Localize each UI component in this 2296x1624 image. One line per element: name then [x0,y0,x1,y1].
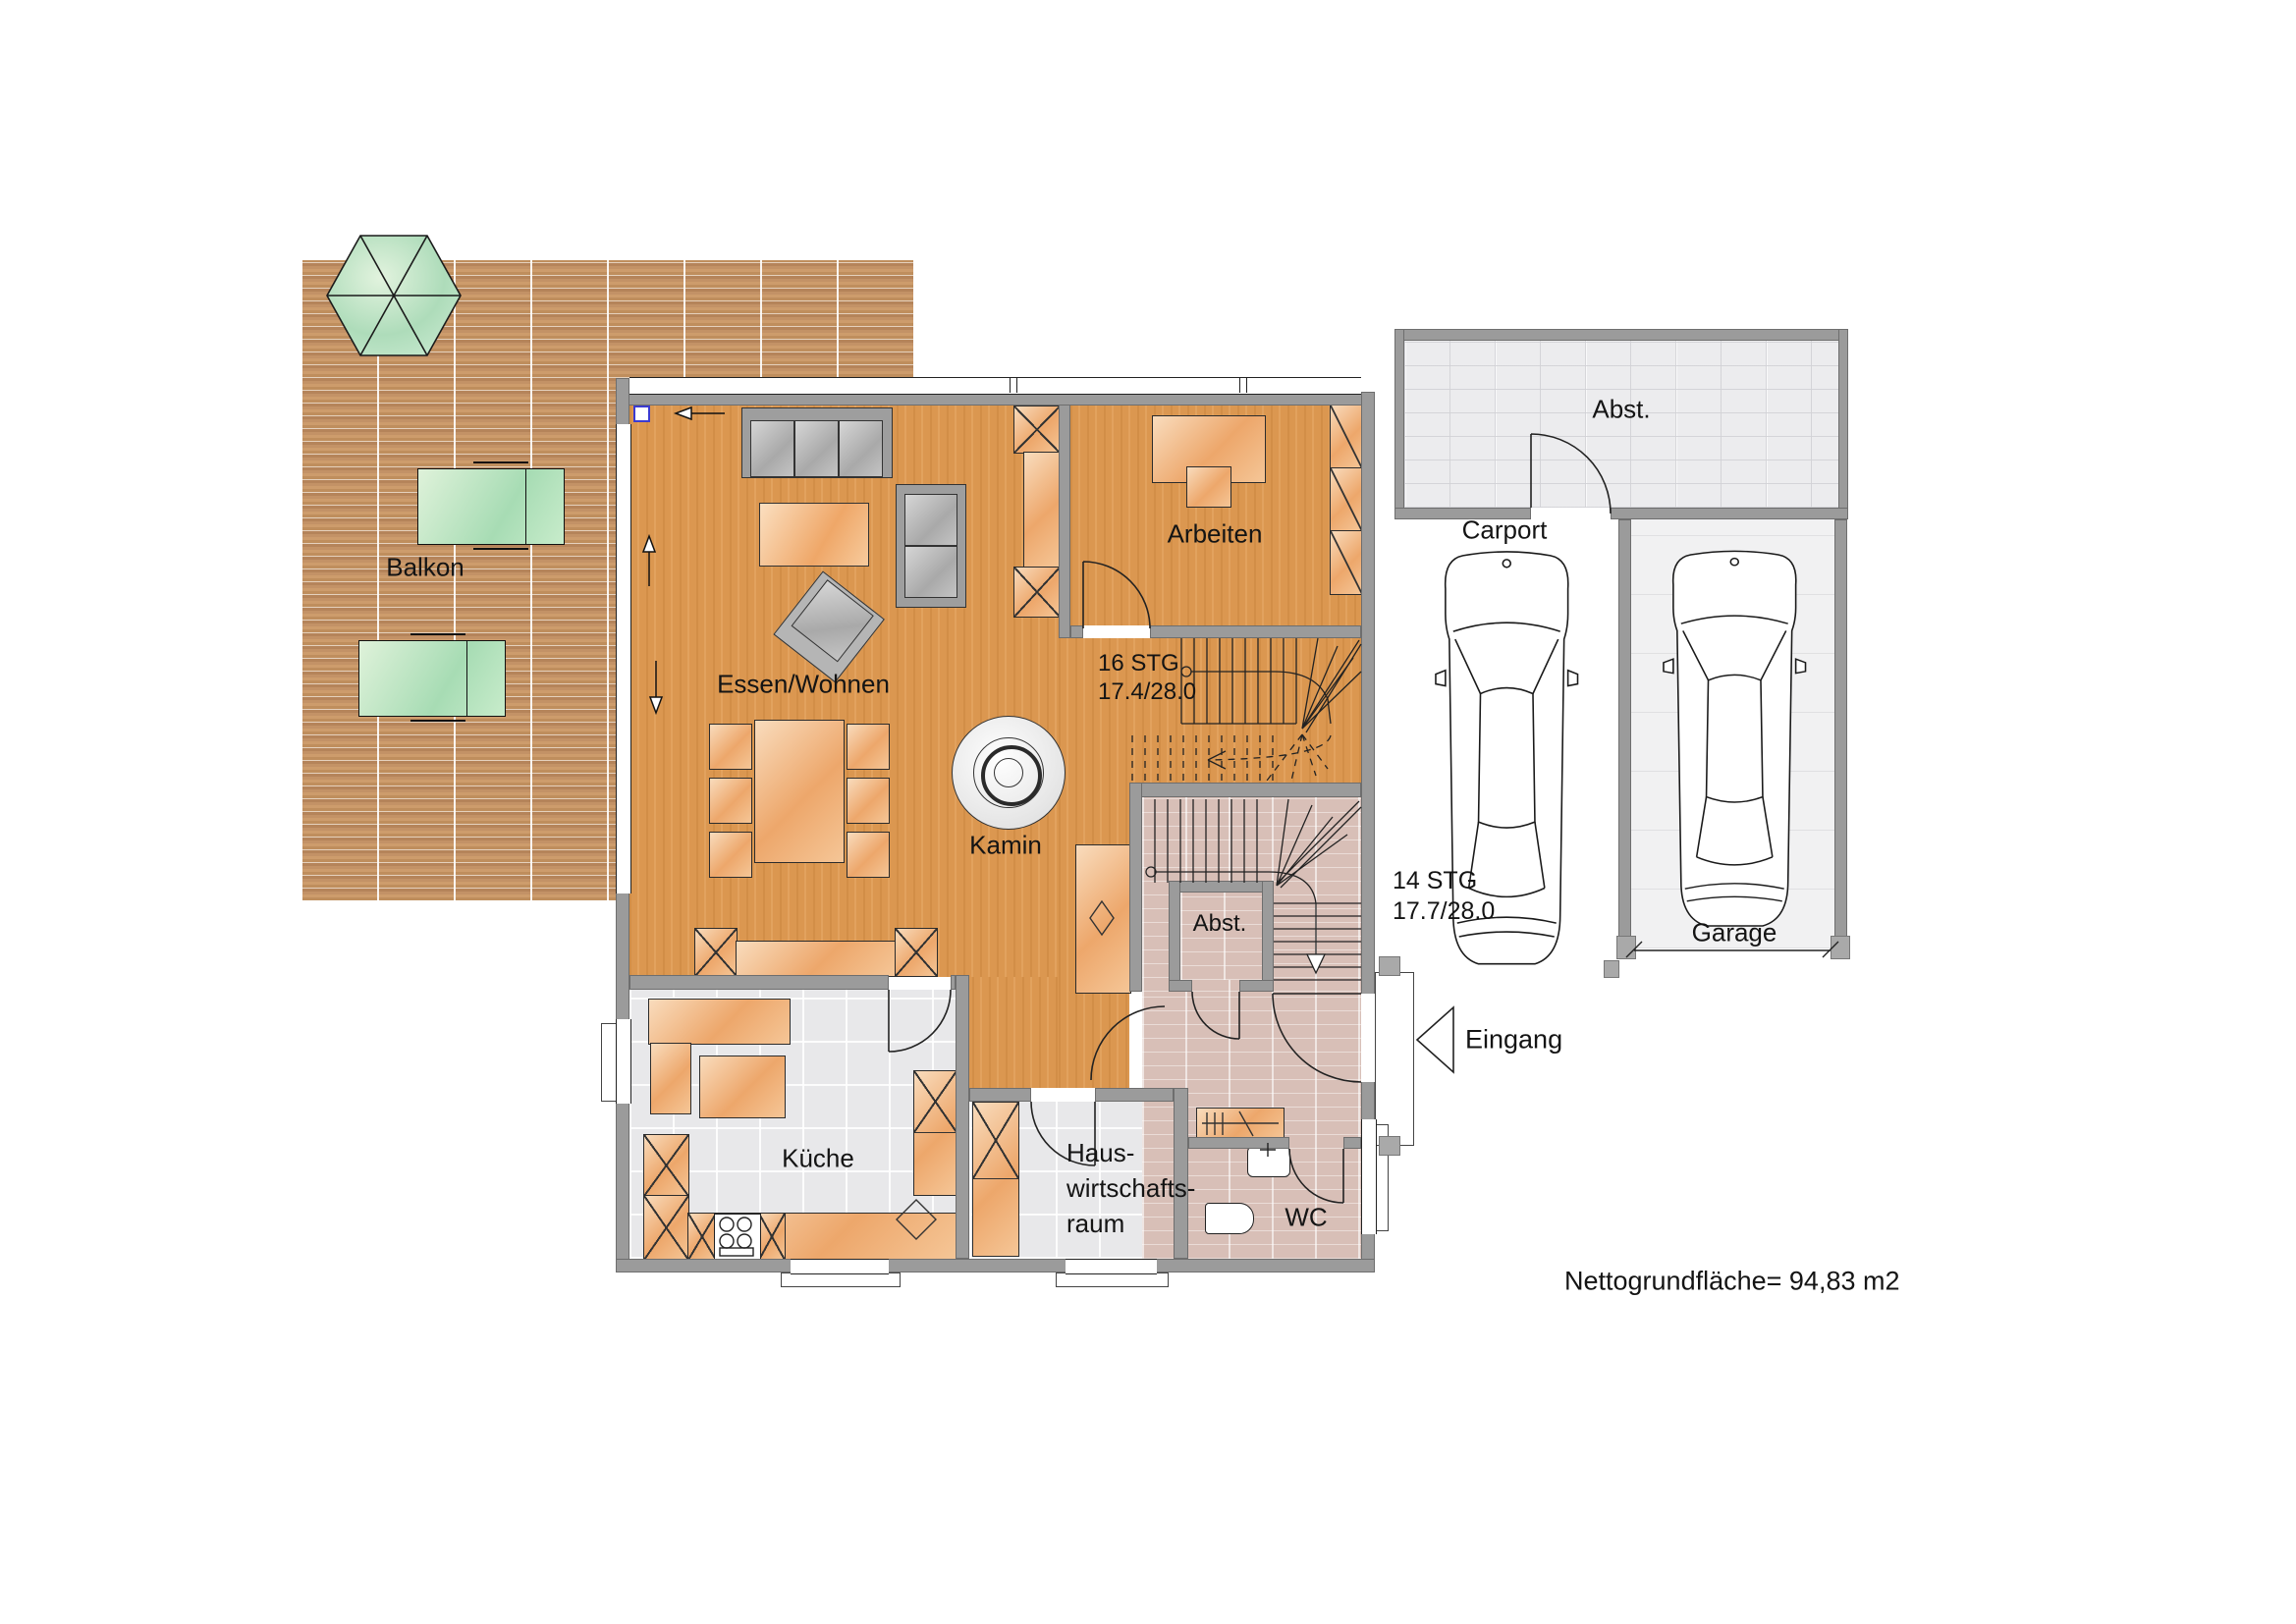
floor-plan-canvas: Balkon Essen/Wohnen Kamin Arbeiten 16 ST… [0,0,2296,1624]
fireplace-ring [994,758,1023,787]
outbuilding-wall [1611,508,1848,519]
window-sill [1056,1272,1169,1287]
wall [1169,881,1180,992]
wall [1262,881,1274,992]
sink [1247,1146,1290,1177]
window-sill [781,1272,901,1287]
tall-cabinet [1023,452,1061,568]
lounger-headrest-line [525,469,526,544]
label-line: Haus- [1066,1135,1195,1170]
label-kamin: Kamin [969,831,1042,861]
room-label-hauswirtschaftsraum: Haus- wirtschafts- raum [1066,1135,1195,1241]
outbuilding-wall [1394,329,1404,517]
sofa-cushion [904,546,957,598]
exterior-wall [616,1259,1375,1272]
interior-wall [969,1088,1031,1102]
wall [1169,980,1192,992]
shelf [1330,405,1363,469]
label-line: wirtschafts- [1066,1170,1195,1206]
sideboard-cabinet [694,928,738,977]
outbuilding-wall [1838,329,1848,517]
room-label-abstellraum-aussen: Abst. [1592,395,1650,425]
shelf [1330,467,1363,532]
kitchen-tall-cabinet [913,1070,957,1196]
window-mullion [1239,377,1247,393]
sofa-cushion [904,494,957,546]
interior-wall [1059,405,1070,638]
fireplace [952,716,1066,830]
dining-chair [709,778,752,824]
dining-chair [847,778,890,824]
stair-steps: 14 STG [1393,866,1495,896]
window-band [629,377,1361,395]
stair-note-16stg: 16 STG 17.4/28.0 [1098,649,1196,706]
sofa-two-seat [896,484,966,608]
lounger [358,640,506,717]
stair-steps: 16 STG [1098,649,1196,677]
sofa-cushion [750,420,794,477]
interior-wall [1129,783,1361,797]
kitchen-cabinet [758,1213,786,1261]
kitchen-cabinet [643,1134,689,1197]
canopy-post [1379,956,1400,976]
sideboard-cabinet [895,928,938,977]
cabinet-x [914,1071,957,1133]
interior-wall [1188,1137,1289,1149]
cabinet-x [973,1103,1018,1179]
rug [759,503,869,567]
wardrobe-cabinet [1013,567,1061,618]
interior-wall [1070,625,1083,638]
sofa-cushion [794,420,839,477]
room-label-wc: WC [1285,1203,1327,1233]
room-label-arbeiten: Arbeiten [1168,519,1263,550]
interior-wall [1343,1137,1361,1149]
label-line: raum [1066,1206,1195,1241]
canopy-post [1379,1136,1400,1156]
kitchen-corner-cabinet [643,1195,689,1261]
wall [1169,881,1274,893]
toilet [1205,1203,1254,1234]
hall-shelf [1196,1108,1285,1141]
interior-wall [1129,783,1142,992]
kitchen-island-block [699,1056,786,1118]
desk-chair [1186,466,1231,508]
cabinet-x [914,1134,957,1195]
window [1066,1259,1157,1274]
plan-marker-square [633,406,650,422]
stair-note-14stg: 14 STG 17.7/28.0 [1393,866,1495,927]
corridor-wardrobe [1075,844,1131,994]
dining-chair [709,724,752,770]
garage-floor [1631,519,1834,948]
label-carport: Carport [1462,515,1548,546]
lounger [417,468,565,545]
shelf [1330,530,1363,595]
sofa-cushion [839,420,883,477]
room-label-kueche: Küche [782,1144,854,1174]
interior-wall [629,975,889,990]
kitchen-counter-island [650,1043,691,1114]
kitchen-cabinet [687,1213,717,1261]
wall-stub [1604,960,1619,978]
cabinet-x [973,1180,1018,1256]
stair-dims: 17.7/28.0 [1393,896,1495,927]
dining-chair [847,724,890,770]
window [791,1259,889,1274]
lounger-headrest-line [466,641,467,716]
label-eingang: Eingang [1465,1025,1562,1056]
room-label-abstellraum-innen: Abst. [1193,910,1247,938]
entrance-door-opening [1361,994,1375,1082]
garage-door-post [1616,936,1636,959]
sideboard [736,941,897,977]
glass-door [616,424,631,893]
window-mullion [1010,377,1017,393]
garage-wall [1618,519,1631,957]
room-label-essen-wohnen: Essen/Wohnen [717,670,890,700]
utility-cabinet [972,1102,1019,1257]
dining-table [754,720,845,863]
outbuilding-wall [1394,329,1848,341]
window [1361,1119,1377,1234]
window [616,1019,631,1104]
interior-wall [1150,625,1361,638]
wall [1239,980,1274,992]
wardrobe-cabinet [1013,406,1061,454]
corridor-floor [956,977,1059,1088]
kitchen-counter-island [648,999,791,1045]
garage-door-post [1831,936,1850,959]
entrance-arrow-icon [1417,1007,1453,1072]
stove [714,1214,761,1260]
garage-wall [1834,519,1847,957]
entrance-canopy [1375,972,1414,1146]
interior-wall [1095,1088,1174,1102]
dining-chair [709,832,752,878]
room-label-balkon: Balkon [386,553,465,583]
label-garage: Garage [1692,918,1777,948]
stair-dims: 17.4/28.0 [1098,677,1196,706]
sofa-three-seat [741,407,893,478]
label-nettogrundflaeche: Nettogrundfläche= 94,83 m2 [1564,1267,1899,1297]
dining-chair [847,832,890,878]
interior-wall [956,975,969,1259]
